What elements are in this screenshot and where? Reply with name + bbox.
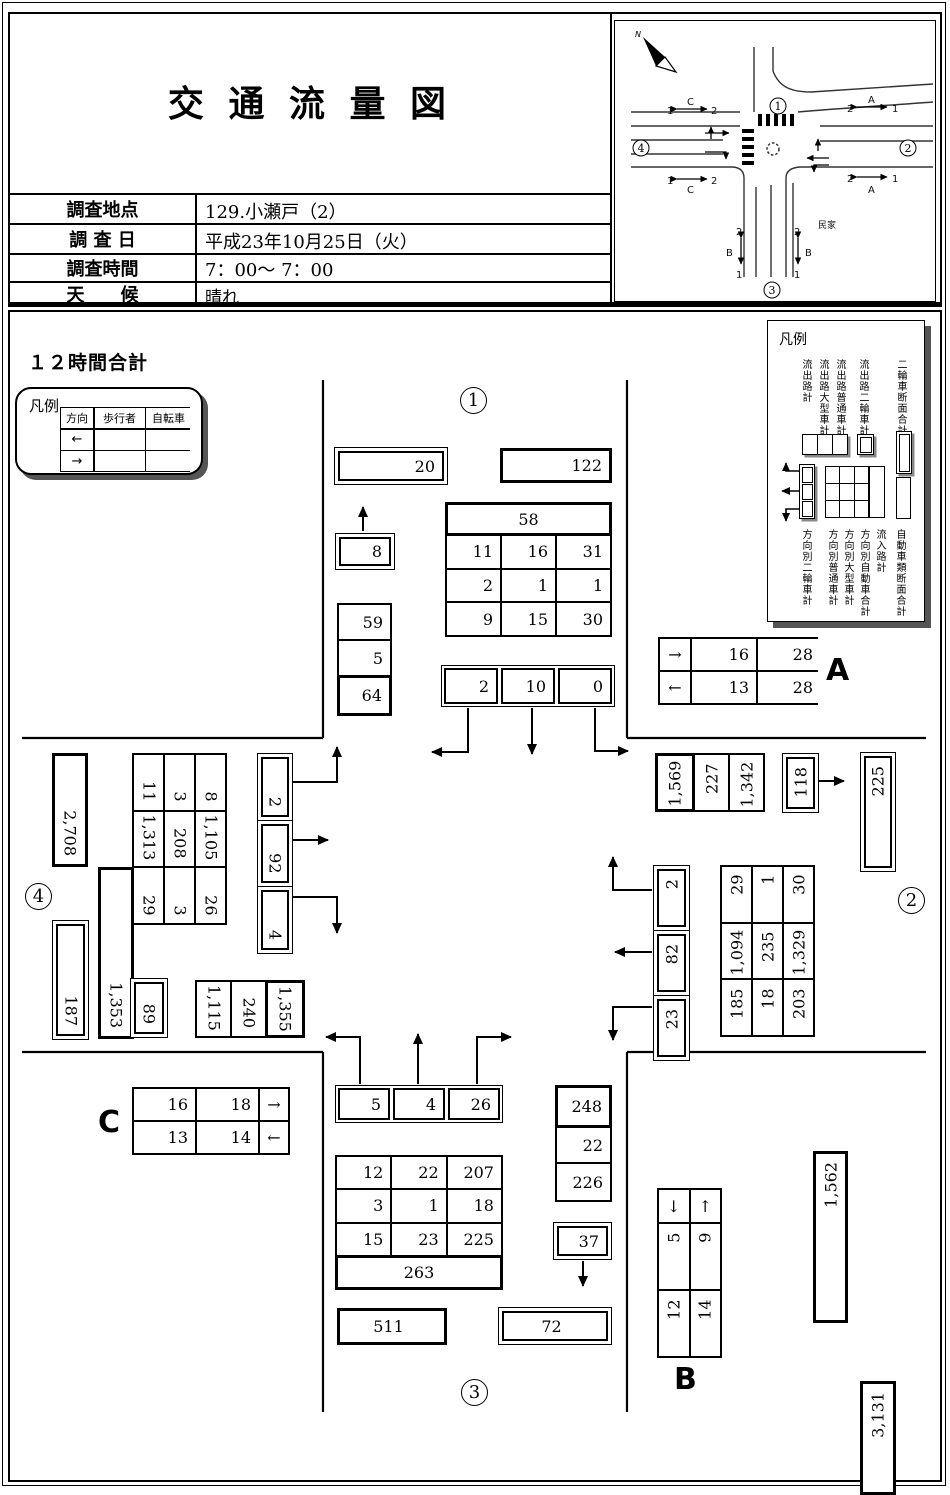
- table-a-cell: 28: [758, 672, 820, 703]
- grid-cell: 22: [392, 1157, 445, 1188]
- legend-label-auto-section: 自動車類断面合計: [894, 529, 904, 617]
- svg-text:2: 2: [711, 176, 717, 187]
- grid-cell: 1: [502, 570, 555, 602]
- info-col-divider: [195, 193, 197, 306]
- grid-cell: 18: [448, 1190, 501, 1221]
- table-a-cell: →: [660, 639, 690, 670]
- svg-text:4: 4: [638, 142, 645, 155]
- west-moto-out-box: 89: [130, 978, 168, 1038]
- grid-cell: 1: [557, 570, 610, 602]
- table-a-cell: ←: [660, 672, 690, 703]
- out-cell: 59: [337, 603, 392, 641]
- table-a-cell: 28: [758, 639, 820, 670]
- legend-label-out-moto: 流出路二輪車計: [857, 359, 867, 436]
- grid-cell: 11: [447, 536, 500, 568]
- grid-cell: 9: [447, 603, 500, 635]
- svg-text:2: 2: [736, 227, 742, 238]
- grid-cell: 1: [753, 867, 782, 922]
- legend-label-out-total: 流出路計: [800, 359, 810, 403]
- legend-in-total-icon: [869, 466, 885, 518]
- table-a-cell: 16: [692, 639, 756, 670]
- legend-moto-section-icon: [896, 431, 912, 474]
- south-moto-out-box: 37: [553, 1222, 612, 1260]
- info-label-time: 調査時間: [10, 254, 195, 281]
- table-b-cell: 5: [659, 1224, 689, 1289]
- table-c-cell: 14: [197, 1122, 258, 1153]
- grid-cell: 29: [134, 868, 163, 923]
- approach-3-label: 3: [461, 1379, 488, 1406]
- west-auto-section-box: 2,708: [52, 753, 88, 867]
- table-c-cell: ←: [260, 1122, 288, 1153]
- out-cell: 227: [693, 753, 730, 812]
- out-total-cell: 1,355: [265, 980, 305, 1038]
- header-divider: [610, 14, 612, 305]
- legend-label-dir-large: 方向別大型車計: [842, 529, 852, 606]
- table-b-cell: 9: [691, 1224, 721, 1289]
- north-moto-out-box: 8: [335, 533, 395, 570]
- legend-dir-right: →: [61, 451, 93, 471]
- north-moto-section-box: 20: [334, 447, 448, 485]
- location-map-drawing: N: [615, 21, 937, 303]
- legend-label-in-total: 流入路計: [874, 529, 884, 573]
- table-b-cell: ↓: [659, 1190, 689, 1222]
- grid-cell: 18: [753, 980, 782, 1035]
- map-flow-arrows: [677, 107, 887, 264]
- out-total-cell: 248: [555, 1085, 612, 1128]
- table-a-label: A: [826, 653, 849, 688]
- east-in-total-box: 1,562: [813, 1151, 848, 1323]
- svg-text:A: A: [868, 185, 875, 196]
- west-out-group: 1,115 240 1,355: [195, 980, 305, 1038]
- dir-cell: 2: [257, 753, 293, 821]
- dir-cell: 4: [257, 886, 293, 954]
- svg-text:1: 1: [892, 104, 898, 115]
- north-auto-section-box: 122: [500, 448, 612, 483]
- table-b-cell: 14: [691, 1291, 721, 1356]
- grid-cell: 1,329: [784, 924, 813, 979]
- grid-cell: 29: [722, 867, 751, 922]
- table-a-cell: 13: [692, 672, 756, 703]
- out-cell: 22: [555, 1126, 612, 1164]
- legend-label-moto-section: 二輪車断面合計: [895, 359, 905, 436]
- svg-text:1: 1: [736, 270, 742, 281]
- table-c-label: C: [98, 1105, 120, 1140]
- svg-text:2: 2: [847, 104, 853, 115]
- legend-boxes-title: 凡例: [779, 329, 807, 349]
- west-dir-boxes: 2 92 4: [257, 753, 293, 954]
- table-c: 16 18 → 13 14 ←: [132, 1087, 290, 1155]
- north-out-stack: 59 5 64: [337, 603, 392, 716]
- legend-moto-out-icon: [857, 434, 874, 455]
- grid-cell: 3: [165, 868, 194, 923]
- table-b-label: B: [674, 1362, 697, 1397]
- table-b-cell: ↑: [691, 1190, 721, 1222]
- svg-text:1: 1: [775, 100, 782, 113]
- center-island-icon: [767, 143, 779, 155]
- dir-cell: 26: [448, 1088, 500, 1120]
- grid-cell: 11: [134, 755, 163, 810]
- svg-text:2: 2: [711, 106, 717, 117]
- south-dir-boxes: 5 4 26: [335, 1085, 503, 1123]
- approach-2-label: 2: [898, 887, 925, 914]
- grid-cell: 30: [784, 867, 813, 922]
- svg-text:民家: 民家: [818, 219, 836, 231]
- grid-cell: 16: [502, 536, 555, 568]
- dir-cell: 92: [257, 820, 293, 887]
- svg-text:B: B: [805, 248, 812, 259]
- legend-out-boxes-icon: [802, 434, 848, 455]
- legend-dir-left: ←: [61, 430, 93, 450]
- svg-text:1: 1: [794, 270, 800, 281]
- grid-cell: 1,313: [134, 812, 163, 867]
- grid-cell: 1,094: [722, 924, 751, 979]
- south-direction-grid: 12 22 207 3 1 18 15 23 225: [335, 1155, 503, 1257]
- east-dir-boxes: 2 82 23: [653, 865, 690, 1061]
- legend-pedestrian-title: 凡例: [29, 395, 59, 416]
- legend-label-dir-moto: 方向別二輪車計: [800, 529, 810, 606]
- grid-cell: 15: [337, 1224, 390, 1255]
- legend-col-pedestrian: 歩行者: [95, 408, 145, 428]
- legend-pedestrian: 凡例 方向 歩行者 自転車 ← →: [15, 387, 203, 475]
- svg-text:C: C: [687, 185, 694, 196]
- info-label-weather: 天 候: [10, 282, 195, 306]
- svg-text:B: B: [726, 248, 733, 259]
- dir-cell: 2: [444, 668, 498, 704]
- table-c-cell: 18: [197, 1089, 258, 1120]
- out-total-cell: 1,569: [655, 753, 695, 812]
- dir-cell: 82: [653, 930, 690, 996]
- north-arrow-icon: N: [635, 30, 676, 72]
- grid-cell: 225: [448, 1224, 501, 1255]
- legend-empty-cell: [146, 430, 191, 450]
- east-moto-out-box: 118: [782, 753, 819, 813]
- legend-col-bicycle: 自転車: [146, 408, 191, 428]
- east-moto-section-box: 225: [860, 752, 896, 872]
- legend-empty-cell: [95, 430, 145, 450]
- north-in-total-box: 58: [445, 502, 612, 536]
- svg-text:N: N: [635, 30, 641, 39]
- west-direction-grid: 11 3 8 1,313 208 1,105 29 3 26: [132, 753, 227, 925]
- page-title: 交 通 流 量 図: [10, 75, 610, 127]
- legend-auto-section-icon: [896, 477, 911, 519]
- approach-1-label: 1: [460, 387, 487, 414]
- west-in-total-box: 1,353: [98, 867, 134, 1039]
- legend-col-direction: 方向: [61, 408, 93, 428]
- west-moto-section-box: 187: [52, 920, 89, 1040]
- out-total-cell: 64: [337, 675, 392, 716]
- location-map: N: [614, 20, 936, 302]
- east-out-group: 1,569 227 1,342: [655, 753, 765, 812]
- dir-cell: 5: [338, 1088, 390, 1120]
- svg-text:1: 1: [892, 174, 898, 185]
- north-direction-grid: 11 16 31 2 1 1 9 15 30: [445, 534, 612, 637]
- svg-text:3: 3: [769, 284, 776, 297]
- legend-label-dir-normal: 方向別普通車計: [826, 529, 836, 606]
- svg-text:1: 1: [667, 106, 673, 117]
- grid-cell: 203: [784, 980, 813, 1035]
- map-roads: [631, 47, 933, 277]
- out-cell: 1,342: [728, 753, 765, 812]
- grid-cell: 207: [448, 1157, 501, 1188]
- svg-text:C: C: [687, 97, 694, 108]
- grid-cell: 2: [447, 570, 500, 602]
- grid-cell: 1: [392, 1190, 445, 1221]
- dir-cell: 4: [393, 1088, 445, 1120]
- dir-cell: 0: [558, 668, 612, 704]
- crosswalk-west: [742, 129, 754, 165]
- svg-text:A: A: [868, 95, 875, 106]
- info-value-date: 平成23年10月25日（火）: [205, 228, 418, 254]
- grid-cell: 235: [753, 924, 782, 979]
- legend-pedestrian-table: 方向 歩行者 自転車 ← →: [60, 407, 190, 468]
- out-cell: 240: [230, 980, 267, 1038]
- out-cell: 226: [555, 1162, 612, 1202]
- svg-text:2: 2: [847, 174, 853, 185]
- table-c-cell: →: [260, 1089, 288, 1120]
- legend-empty-cell: [146, 451, 191, 471]
- grid-cell: 23: [392, 1224, 445, 1255]
- east-auto-section-box: 3,131: [860, 1381, 896, 1495]
- south-out-stack: 248 22 226: [555, 1085, 612, 1202]
- info-value-site: 129.小瀬戸（2）: [205, 198, 347, 224]
- legend-boxes: 凡例 流出路計 流出路大型車計 流出路普通車計 流出路二輪車計 二輪車断面合計: [767, 320, 925, 622]
- south-moto-section-box: 72: [498, 1307, 612, 1345]
- map-approach-numbers: 1 2 3 4: [633, 98, 916, 298]
- grid-cell: 15: [502, 603, 555, 635]
- table-b: ↓ ↑ 5 9 12 14: [657, 1188, 722, 1358]
- east-direction-grid: 29 1 30 1,094 235 1,329 185 18 203: [720, 865, 815, 1037]
- north-dir-boxes: 2 10 0: [441, 665, 615, 707]
- dir-cell: 10: [501, 668, 555, 704]
- grid-cell: 3: [165, 755, 194, 810]
- legend-label-out-large: 流出路大型車計: [817, 359, 827, 436]
- svg-text:1: 1: [667, 176, 673, 187]
- legend-empty-cell: [95, 451, 145, 471]
- legend-dir-grid-icon: [825, 466, 869, 518]
- south-in-total-box: 263: [335, 1255, 503, 1290]
- info-value-time: 7：00～ 7：00: [205, 256, 333, 282]
- svg-text:2: 2: [905, 142, 912, 155]
- table-a: → 16 28 ← 13 28: [658, 637, 818, 705]
- table-b-cell: 12: [659, 1291, 689, 1356]
- info-value-weather: 晴れ: [205, 283, 239, 308]
- grid-cell: 31: [557, 536, 610, 568]
- dir-cell: 2: [653, 865, 690, 931]
- south-out-total-box: 511: [337, 1308, 447, 1345]
- out-cell: 5: [337, 639, 392, 677]
- svg-text:2: 2: [794, 227, 800, 238]
- grid-cell: 26: [196, 868, 225, 923]
- legend-label-dir-auto-total: 方向別自動車合計: [858, 529, 868, 617]
- grid-cell: 3: [337, 1190, 390, 1221]
- grid-cell: 1,105: [196, 812, 225, 867]
- legend-dir-arrows-icon: [772, 459, 802, 529]
- info-label-site: 調査地点: [10, 194, 195, 223]
- out-cell: 1,115: [195, 980, 232, 1038]
- summary-title: １２時間合計: [28, 348, 148, 375]
- grid-cell: 30: [557, 603, 610, 635]
- info-label-date: 調 査 日: [10, 224, 195, 253]
- table-c-cell: 16: [134, 1089, 195, 1120]
- grid-cell: 8: [196, 755, 225, 810]
- crosswalk-north: [758, 114, 794, 126]
- grid-cell: 12: [337, 1157, 390, 1188]
- legend-label-out-normal: 流出路普通車計: [834, 359, 844, 436]
- grid-cell: 208: [165, 812, 194, 867]
- dir-cell: 23: [653, 995, 690, 1061]
- table-c-cell: 13: [134, 1122, 195, 1153]
- grid-cell: 185: [722, 980, 751, 1035]
- approach-4-label: 4: [25, 883, 52, 910]
